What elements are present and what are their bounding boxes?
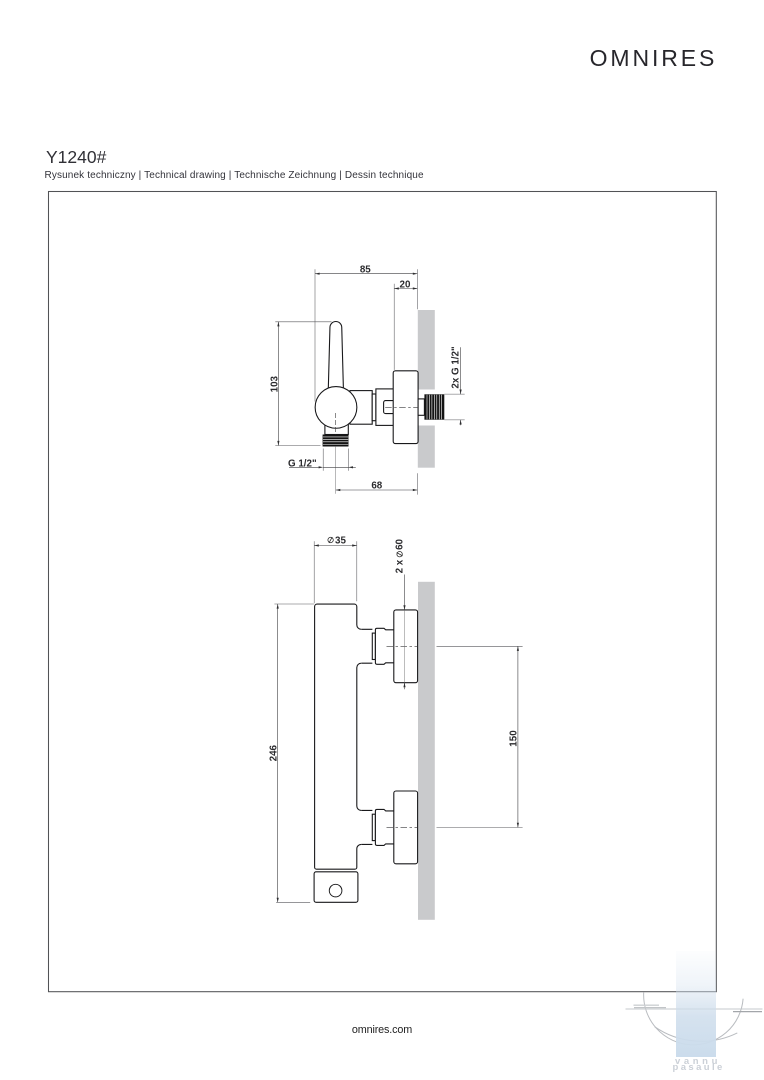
svg-text:85: 85: [360, 264, 371, 275]
svg-text:103: 103: [269, 375, 280, 392]
svg-text:G 1/2": G 1/2": [288, 458, 317, 469]
svg-text:35: 35: [335, 536, 346, 547]
svg-text:246: 246: [269, 744, 280, 761]
svg-text:68: 68: [371, 481, 382, 492]
svg-text:60: 60: [394, 538, 405, 549]
svg-text:2 x: 2 x: [394, 559, 405, 573]
svg-text:2x G 1/2": 2x G 1/2": [450, 346, 461, 388]
svg-text:150: 150: [508, 730, 519, 747]
svg-text:20: 20: [400, 279, 411, 290]
